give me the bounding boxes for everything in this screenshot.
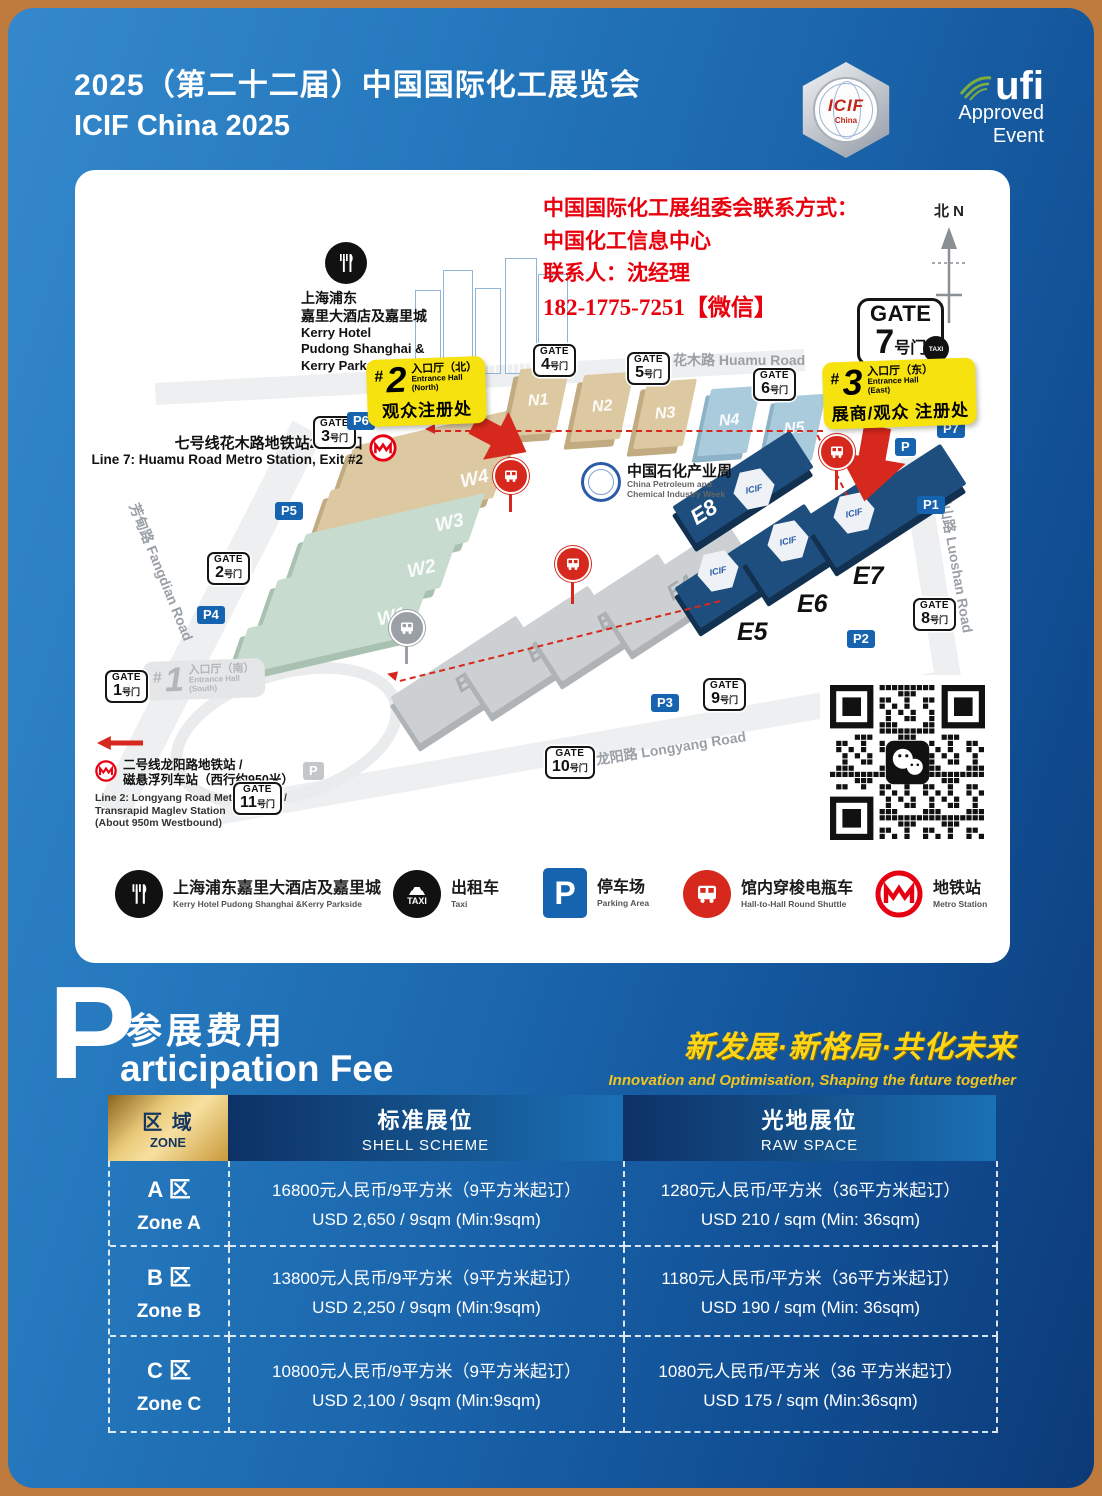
hall-e5-label: E5 — [737, 618, 768, 647]
venue-map: 花木路 Huamu Road 芳甸路 Fangdian Road 罗山路 Luo… — [75, 170, 1010, 963]
gate-10-badge: GATE10号门 — [545, 746, 595, 779]
title-en: ICIF China 2025 — [74, 107, 641, 146]
gate-4-badge: GATE4号门 — [533, 344, 576, 377]
raw-space-header-cell: 光地展位 RAW SPACE — [623, 1095, 996, 1161]
slogan-en: Innovation and Optimisation, Shaping the… — [568, 1072, 1016, 1089]
petro-zh: 中国石化产业周 — [627, 464, 732, 481]
parking-icon: P — [543, 868, 587, 918]
kerry-zh2: 嘉里大酒店及嘉里城 — [301, 308, 427, 326]
gate-9-badge: GATE9号门 — [703, 678, 746, 711]
slogan: 新发展·新格局·共化未来 Innovation and Optimisation… — [568, 1022, 1016, 1089]
ufi-logo: ufi Approved Event — [924, 70, 1044, 148]
fee-title-zh: 参展费用 — [126, 1002, 286, 1054]
legend-shuttle: 馆内穿梭电瓶车Hall-to-Hall Round Shuttle — [683, 870, 853, 918]
table-row-c-raw: 1080元人民币/平方米（36 平方米起订）USD 175 / sqm (Min… — [625, 1337, 998, 1433]
qr-code-icon — [820, 675, 992, 853]
parking-p1: P1 — [917, 496, 945, 514]
ufi-approved: Approved — [924, 102, 1044, 125]
shuttle-bus-icon — [683, 870, 731, 918]
entrance-2-callout: # 2 入口厅（北） Entrance Hall (North) 观众注册处 — [366, 356, 487, 428]
entrance-3-callout: # 3 入口厅（东） Entrance Hall (East) 展商/观众 注册… — [822, 357, 978, 430]
entrance-1-callout: # 1 入口厅（南） Entrance Hall (South) — [142, 658, 265, 701]
entrance-2-registration: 观众注册处 — [375, 395, 479, 424]
pricing-table-header: 区 域 ZONE 标准展位 SHELL SCHEME 光地展位 RAW SPAC… — [108, 1095, 996, 1161]
contact-phone: 182-1775-7251【微信】 — [543, 290, 943, 326]
metro-icon — [95, 760, 117, 782]
table-row-c-zone: C 区Zone C — [110, 1337, 230, 1433]
table-row-c-shell: 10800元人民币/9平方米（9平方米起订）USD 2,100 / 9sqm (… — [230, 1337, 625, 1433]
entrance-1-number: 1 — [164, 665, 184, 696]
entrance-2-number: 2 — [386, 364, 407, 397]
icif-logo-text: ICIF — [828, 96, 864, 116]
gate-11-badge: GATE11号门 — [233, 782, 282, 815]
table-row-b-raw: 1180元人民币/平方米（36平方米起订）USD 190 / sqm (Min:… — [625, 1247, 998, 1337]
pricing-table-body: A 区Zone A 16800元人民币/9平方米（9平方米起订）USD 2,65… — [108, 1161, 996, 1433]
gate-5-badge: GATE5号门 — [627, 352, 670, 385]
icif-logo: ICIF China — [798, 60, 894, 160]
ufi-swoosh-icon — [959, 74, 993, 102]
petro-ring-icon — [581, 462, 621, 502]
metro-icon — [875, 870, 923, 918]
parking-p5: P5 — [275, 502, 303, 520]
entrance-3-registration: 展商/观众 注册处 — [831, 396, 969, 426]
shell-scheme-header-cell: 标准展位 SHELL SCHEME — [228, 1095, 623, 1161]
metro-icon — [369, 434, 397, 462]
icif-logo-sub: China — [835, 116, 857, 125]
hall-e6-label: E6 — [797, 590, 828, 619]
hall-n3: N3 — [633, 379, 697, 450]
fangdian-road-label: 芳甸路 Fangdian Road — [124, 500, 198, 644]
parking-p3: P3 — [651, 694, 679, 712]
legend-parking: P 停车场Parking Area — [543, 868, 649, 918]
ufi-event: Event — [924, 125, 1044, 148]
table-row-a-raw: 1280元人民币/平方米（36平方米起订）USD 210 / sqm (Min:… — [625, 1161, 998, 1247]
gate-2-badge: GATE2号门 — [207, 552, 250, 585]
organizer-contact: 中国国际化工展组委会联系方式： 中国化工信息中心 联系人：沈经理 182-177… — [543, 192, 943, 325]
gate-1-badge: GATE1号门 — [105, 670, 148, 703]
zone-header-cell: 区 域 ZONE — [108, 1095, 228, 1161]
pricing-table: 区 域 ZONE 标准展位 SHELL SCHEME 光地展位 RAW SPAC… — [108, 1095, 996, 1433]
shuttle-bus-icon-gray — [389, 610, 425, 646]
gate-6-badge: GATE6号门 — [753, 368, 796, 401]
taxi-icon: TAXI — [393, 870, 441, 918]
legend-hotel: 上海浦东嘉里大酒店及嘉里城Kerry Hotel Pudong Shanghai… — [115, 870, 381, 918]
slogan-zh: 新发展·新格局·共化未来 — [568, 1022, 1016, 1066]
legend-metro: 地铁站Metro Station — [875, 870, 987, 918]
compass-en: N — [953, 203, 964, 220]
kerry-en2: Pudong Shanghai & — [301, 341, 427, 357]
contact-line-1: 中国国际化工展组委会联系方式： — [543, 192, 943, 225]
petro-en2: Chemical Industry Week — [627, 490, 732, 500]
shuttle-bus-icon — [819, 434, 855, 470]
table-row-a-shell: 16800元人民币/9平方米（9平方米起订）USD 2,650 / 9sqm (… — [230, 1161, 625, 1247]
table-row-b-shell: 13800元人民币/9平方米（9平方米起订）USD 2,250 / 9sqm (… — [230, 1247, 625, 1337]
parking-gray: P — [303, 762, 324, 780]
shuttle-bus-icon — [555, 546, 591, 582]
route-arrowhead — [386, 669, 398, 681]
huamu-road-label: 花木路 Huamu Road — [673, 350, 805, 370]
table-row-b-zone: B 区Zone B — [110, 1247, 230, 1337]
parking-vip: P — [895, 438, 916, 456]
icif-globe-icon: ICIF China — [813, 77, 879, 143]
page-title: 2025（第二十二届）中国国际化工展览会 ICIF China 2025 — [74, 66, 641, 146]
petro-week-logo: 中国石化产业周 China Petroleum and Chemical Ind… — [581, 462, 732, 502]
restaurant-icon — [325, 242, 367, 284]
flyer-page: 2025（第二十二届）中国国际化工展览会 ICIF China 2025 ICI… — [8, 8, 1094, 1488]
table-row-a-zone: A 区Zone A — [110, 1161, 230, 1247]
parking-p2: P2 — [847, 630, 875, 648]
contact-line-2: 中国化工信息中心 — [543, 225, 943, 258]
wechat-qr-code — [820, 675, 992, 853]
kerry-en1: Kerry Hotel — [301, 325, 427, 341]
entrance-3-number: 3 — [842, 366, 863, 399]
fee-title-en: articipation Fee — [120, 1048, 393, 1090]
hall-n4: N4 — [697, 386, 761, 457]
contact-line-3: 联系人：沈经理 — [543, 257, 943, 290]
ufi-name: ufi — [995, 70, 1044, 102]
legend-taxi: TAXI 出租车Taxi — [393, 870, 499, 918]
gate-8-badge: GATE8号门 — [913, 598, 956, 631]
restaurant-icon — [115, 870, 163, 918]
route-arrowhead — [425, 424, 435, 434]
title-zh: 2025（第二十二届）中国国际化工展览会 — [74, 66, 641, 107]
hall-e7-label: E7 — [853, 562, 884, 591]
line7-note-en: Line 7: Huamu Road Metro Station, Exit #… — [75, 452, 363, 467]
kerry-zh1: 上海浦东 — [301, 290, 427, 308]
parking-p4: P4 — [197, 606, 225, 624]
shuttle-bus-icon — [493, 458, 529, 494]
